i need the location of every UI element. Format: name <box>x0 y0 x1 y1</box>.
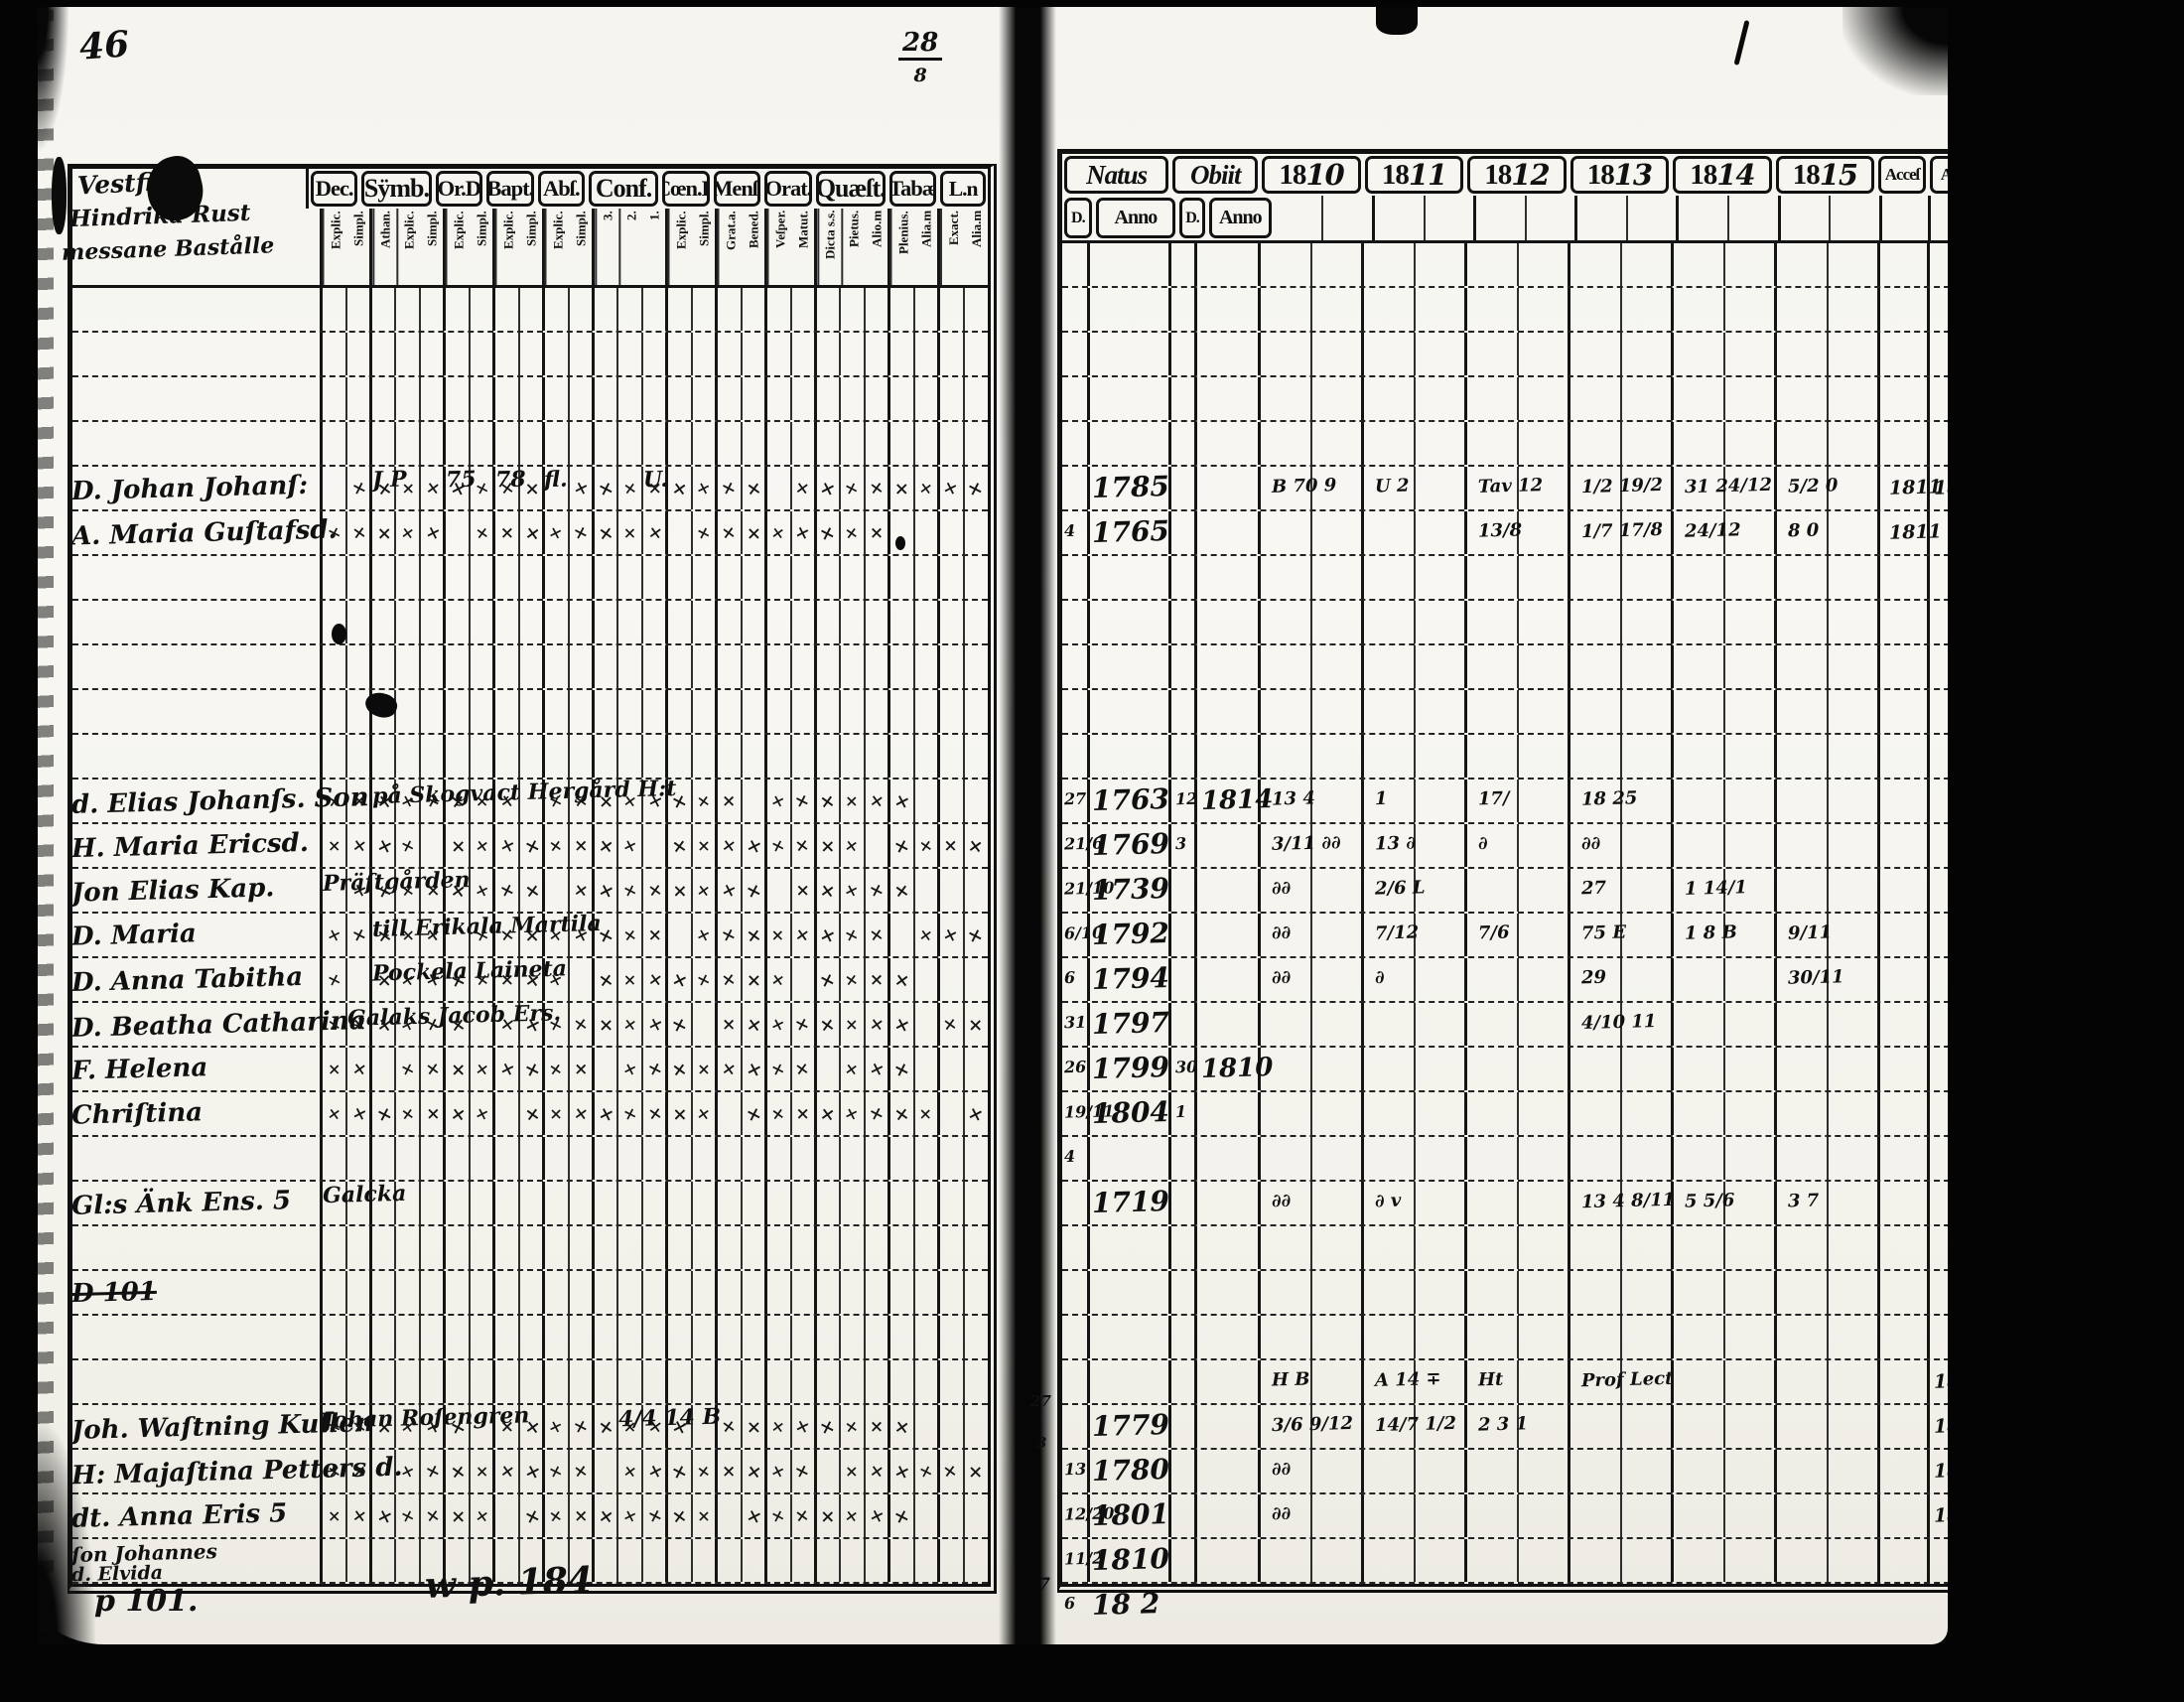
mark-cell-group <box>495 422 545 465</box>
mark-cell <box>323 824 347 867</box>
mark-cell <box>595 422 618 465</box>
mark-cell <box>915 1539 938 1582</box>
year-cell <box>1467 1360 1570 1403</box>
year-cell <box>1674 1360 1777 1403</box>
year-cell <box>1467 914 1570 956</box>
mark-cell <box>595 1137 618 1180</box>
year-cell <box>1261 780 1364 822</box>
mark-cell <box>817 1182 841 1224</box>
mark-cell <box>495 1048 520 1090</box>
table-row <box>1062 1494 1979 1539</box>
mark-cell <box>817 288 841 331</box>
mark-cell-group <box>890 1494 940 1537</box>
year-cell <box>1467 601 1570 643</box>
mark-cell-group <box>940 1405 988 1448</box>
mark-cell-group <box>446 1539 495 1582</box>
mark-cell-group <box>446 958 495 1001</box>
mark-cell <box>693 1494 716 1537</box>
mark-cell-group <box>767 1494 817 1537</box>
mark-cell-group <box>446 690 495 733</box>
year-header-1814: 18 14 <box>1673 156 1771 194</box>
mark-cell-group <box>323 1048 372 1090</box>
obiit-day-cell <box>1171 377 1197 420</box>
mark-cell <box>693 333 716 375</box>
mark-cell <box>421 556 443 599</box>
mark-cell <box>643 1048 665 1090</box>
natus-anno-cell <box>1090 1405 1171 1448</box>
mark-cell <box>471 1182 493 1224</box>
mark-cell <box>347 1494 370 1537</box>
mark-cell <box>570 333 593 375</box>
natus-day-cell <box>1062 1003 1090 1046</box>
subheader-group: Explic.Simpl. <box>495 209 545 285</box>
table-row <box>1062 1137 1979 1182</box>
mark-cell-group <box>495 1182 545 1224</box>
mark-cell <box>965 1048 988 1090</box>
mark-cell <box>396 511 420 554</box>
mark-cell-group <box>595 511 668 554</box>
mark-cell <box>743 1092 765 1135</box>
mark-cell-group <box>890 377 940 420</box>
mark-cell <box>618 377 642 420</box>
mark-cell <box>965 1092 988 1135</box>
mark-cell <box>890 1539 915 1582</box>
mark-cell-group <box>446 556 495 599</box>
mark-cell <box>446 780 471 822</box>
year-header-1815: 18 15 <box>1776 156 1874 194</box>
column-header-7: Cœn.D <box>662 171 710 207</box>
subheader-label: Alio.m <box>866 209 887 285</box>
mark-cell-group <box>940 1360 988 1403</box>
mark-cell-group <box>595 1316 668 1358</box>
mark-cell-group <box>767 1092 817 1135</box>
mark-cell <box>890 735 915 778</box>
mark-cell <box>792 601 815 643</box>
mark-cell-group <box>668 1137 718 1180</box>
mark-cell-group <box>495 645 545 688</box>
natus-day-cell <box>1062 1405 1090 1448</box>
name-cell <box>72 824 323 867</box>
mark-cell-group <box>718 1092 767 1135</box>
mark-cell-group <box>817 288 890 331</box>
mark-cell <box>396 333 420 375</box>
year-cell <box>1261 645 1364 688</box>
name-cell <box>72 422 323 465</box>
mark-cell <box>323 1048 347 1090</box>
mark-cell <box>965 333 988 375</box>
natus-anno-cell <box>1090 780 1171 822</box>
year-header-1810: 18 10 <box>1262 156 1360 194</box>
mark-cell <box>618 1271 642 1314</box>
obiit-anno-cell <box>1197 422 1261 465</box>
table-row <box>1062 780 1979 824</box>
mark-cell <box>495 690 520 733</box>
mark-cell <box>866 556 887 599</box>
mark-cell <box>915 1226 938 1269</box>
mark-cell <box>545 645 570 688</box>
subheader-label: Explic. <box>495 209 520 285</box>
mark-cell <box>446 958 471 1001</box>
mark-cell <box>668 467 693 509</box>
mark-cell-group <box>495 1226 545 1269</box>
mark-cell <box>743 958 765 1001</box>
year-cell <box>1570 914 1674 956</box>
mark-cell-group <box>817 377 890 420</box>
mark-cell <box>471 824 493 867</box>
mark-cell <box>693 511 716 554</box>
mark-cell <box>817 645 841 688</box>
table-row <box>1062 869 1979 914</box>
mark-cell <box>866 1494 887 1537</box>
mark-cell <box>915 1182 938 1224</box>
mark-cell-group <box>940 958 988 1001</box>
mark-cell <box>915 556 938 599</box>
mark-cell <box>421 1539 443 1582</box>
mark-cell <box>323 422 347 465</box>
mark-cell <box>372 1450 396 1492</box>
year-cell <box>1364 377 1467 420</box>
mark-cell-group <box>446 1137 495 1180</box>
year-subcols <box>1781 196 1882 240</box>
right-header-row: NatusObiit18 1018 1118 1218 1318 1418 15… <box>1062 154 1979 196</box>
mark-cell <box>767 377 792 420</box>
natus-anno-cell <box>1090 1137 1171 1180</box>
subheader-group: Athan.Explic.Simpl. <box>372 209 446 285</box>
year-cell <box>1570 1405 1674 1448</box>
mark-cell-group <box>817 1360 890 1403</box>
mark-cell <box>595 824 618 867</box>
mark-cell <box>520 1494 543 1537</box>
mark-cell <box>372 914 396 956</box>
mark-cell <box>495 333 520 375</box>
mark-cell <box>520 735 543 778</box>
natus-anno-cell <box>1090 377 1171 420</box>
mark-cell <box>446 1360 471 1403</box>
mark-cell-group <box>495 1271 545 1314</box>
mark-cell <box>866 1226 887 1269</box>
mark-cell <box>693 1271 716 1314</box>
mark-cell <box>817 1092 841 1135</box>
acce-cell <box>1880 1405 1930 1448</box>
mark-cell <box>817 467 841 509</box>
mark-cell <box>570 556 593 599</box>
mark-cell <box>347 556 370 599</box>
year-cell <box>1467 1048 1570 1090</box>
mark-cell-group <box>372 377 446 420</box>
year-cell <box>1467 243 1570 286</box>
mark-cell <box>643 1271 665 1314</box>
mark-cell <box>372 422 396 465</box>
mark-cell <box>940 780 965 822</box>
mark-cell <box>817 1539 841 1582</box>
mark-cell <box>841 735 865 778</box>
table-row <box>72 556 988 601</box>
mark-cell <box>570 1494 593 1537</box>
natus-header: Natus <box>1064 156 1168 194</box>
mark-cell-group <box>718 735 767 778</box>
year-cell <box>1674 1494 1777 1537</box>
subheader-label: 1. <box>643 209 665 285</box>
mark-cell <box>495 645 520 688</box>
mark-cell-group <box>495 1003 545 1046</box>
mark-cell-group <box>767 869 817 912</box>
mark-cell <box>693 556 716 599</box>
mark-cell <box>743 467 765 509</box>
mark-cell <box>520 1271 543 1314</box>
subheader-group: Plenius.Alia.m <box>890 209 940 285</box>
mark-cell <box>545 1405 570 1448</box>
mark-cell <box>446 333 471 375</box>
acce-cell <box>1880 735 1930 778</box>
mark-cell <box>965 1182 988 1224</box>
mark-cell <box>693 601 716 643</box>
mark-cell <box>866 869 887 912</box>
mark-cell <box>841 824 865 867</box>
year-cell <box>1674 243 1777 286</box>
mark-cell <box>495 1539 520 1582</box>
table-row <box>1062 1405 1979 1450</box>
year-cell <box>1674 1048 1777 1090</box>
mark-cell <box>866 333 887 375</box>
subheader-label: Alia.m <box>965 209 988 285</box>
mark-cell <box>718 735 743 778</box>
mark-cell <box>890 914 915 956</box>
year-cell <box>1777 556 1880 599</box>
year-cell <box>1467 1182 1570 1224</box>
mark-cell <box>743 1182 765 1224</box>
mark-cell <box>693 288 716 331</box>
mark-cell <box>743 377 765 420</box>
mark-cell <box>792 556 815 599</box>
natus-anno-cell <box>1090 288 1171 331</box>
mark-cell-group <box>718 1360 767 1403</box>
mark-cell <box>693 1405 716 1448</box>
mark-cell <box>495 1182 520 1224</box>
mark-cell <box>471 556 493 599</box>
mark-cell <box>668 914 693 956</box>
mark-cell <box>965 869 988 912</box>
mark-cell <box>545 869 570 912</box>
mark-cell-group <box>890 1450 940 1492</box>
mark-cell-group <box>767 333 817 375</box>
mark-cell <box>396 824 420 867</box>
mark-cell-group <box>323 1539 372 1582</box>
mark-cell-group <box>446 1316 495 1358</box>
mark-cell-group <box>595 1494 668 1537</box>
mark-cell <box>347 601 370 643</box>
mark-cell <box>743 601 765 643</box>
mark-cell <box>965 377 988 420</box>
natus-anno-cell <box>1090 1271 1171 1314</box>
mark-cell-group <box>495 511 545 554</box>
mark-cell <box>471 1494 493 1537</box>
mark-cell <box>718 601 743 643</box>
mark-cell <box>471 377 493 420</box>
mark-cell <box>545 958 570 1001</box>
mark-cell <box>545 1092 570 1135</box>
mark-cell <box>915 824 938 867</box>
mark-cell <box>471 1271 493 1314</box>
mark-cell <box>618 914 642 956</box>
mark-cell <box>421 377 443 420</box>
mark-cell <box>396 1316 420 1358</box>
mark-cell-group <box>595 288 668 331</box>
mark-cell <box>570 1092 593 1135</box>
mark-cell-group <box>372 735 446 778</box>
year-cell <box>1261 556 1364 599</box>
mark-cell-group <box>668 735 718 778</box>
year-cell <box>1364 690 1467 733</box>
mark-cell-group <box>595 1182 668 1224</box>
table-row <box>1062 601 1979 645</box>
binding-speckle <box>36 10 54 1638</box>
mark-cell <box>718 1048 743 1090</box>
mark-cell <box>520 1048 543 1090</box>
subheader-group: Explic.Simpl. <box>668 209 718 285</box>
mark-cell-group <box>446 1003 495 1046</box>
mark-cell <box>866 601 887 643</box>
table-row <box>1062 1271 1979 1316</box>
year-cell <box>1674 511 1777 554</box>
mark-cell <box>915 333 938 375</box>
mark-cell <box>792 1360 815 1403</box>
obiit-anno-cell <box>1197 1360 1261 1403</box>
mark-cell <box>668 377 693 420</box>
acce-cell <box>1880 1316 1930 1358</box>
mark-cell <box>841 645 865 688</box>
mark-cell <box>595 1271 618 1314</box>
year-cell <box>1467 780 1570 822</box>
year-cell <box>1467 824 1570 867</box>
year-cell <box>1364 1003 1467 1046</box>
mark-cell <box>718 869 743 912</box>
mark-cell <box>940 1092 965 1135</box>
mark-cell <box>446 735 471 778</box>
mark-cell <box>890 780 915 822</box>
mark-cell <box>471 690 493 733</box>
mark-cell <box>323 780 347 822</box>
mark-cell <box>595 1003 618 1046</box>
year-cell <box>1261 690 1364 733</box>
mark-cell <box>841 1405 865 1448</box>
mark-cell <box>965 288 988 331</box>
subheader-label: Explic. <box>446 209 471 285</box>
mark-cell <box>495 556 520 599</box>
acce-cell <box>1880 422 1930 465</box>
mark-cell <box>817 601 841 643</box>
mark-cell-group <box>890 288 940 331</box>
mark-cell-group <box>718 690 767 733</box>
name-cell <box>72 1360 323 1403</box>
year-cell <box>1261 914 1364 956</box>
year-cell <box>1364 1092 1467 1135</box>
mark-cell <box>767 1137 792 1180</box>
table-row <box>1062 243 1979 288</box>
obiit-day-cell <box>1171 1494 1197 1537</box>
year-subcols <box>1375 196 1476 240</box>
mark-cell <box>396 1003 420 1046</box>
natus-day-cell <box>1062 914 1090 956</box>
mark-cell <box>421 1137 443 1180</box>
name-cell <box>72 1450 323 1492</box>
mark-cell <box>495 467 520 509</box>
mark-cell <box>792 333 815 375</box>
mark-cell-group <box>890 1360 940 1403</box>
mark-cell <box>718 377 743 420</box>
mark-cell <box>792 645 815 688</box>
mark-cell <box>421 1226 443 1269</box>
mark-cell-group <box>595 824 668 867</box>
mark-cell <box>570 869 593 912</box>
mark-cell <box>866 1450 887 1492</box>
mark-cell <box>396 377 420 420</box>
mark-cell <box>570 780 593 822</box>
left-header-row: Dec.Sÿmb.Or.DBapt.Abſ.Conf.Cœn.DMenſ.Ora… <box>72 169 988 209</box>
mark-cell-group <box>817 824 890 867</box>
mark-cell <box>372 1003 396 1046</box>
left-subheader-row: Explic.Simpl.Athan.Explic.Simpl.Explic.S… <box>72 209 988 288</box>
scan-edge-top <box>0 0 2184 7</box>
mark-cell <box>323 958 347 1001</box>
mark-cell <box>595 1450 618 1492</box>
year-cell <box>1570 556 1674 599</box>
mark-cell-group <box>372 869 446 912</box>
mark-cell <box>743 1137 765 1180</box>
mark-cell <box>618 735 642 778</box>
mark-cell <box>347 377 370 420</box>
mark-cell <box>890 1405 915 1448</box>
mark-cell <box>396 1271 420 1314</box>
year-cell <box>1261 601 1364 643</box>
year-cell <box>1261 288 1364 331</box>
mark-cell-group <box>372 1360 446 1403</box>
natus-day-cell <box>1062 869 1090 912</box>
year-cell <box>1674 780 1777 822</box>
mark-cell <box>495 735 520 778</box>
mark-cell <box>618 1494 642 1537</box>
mark-cell <box>618 1450 642 1492</box>
table-row <box>72 869 988 914</box>
name-cell <box>72 1271 323 1314</box>
mark-cell <box>347 824 370 867</box>
mark-cell <box>668 1048 693 1090</box>
mark-cell <box>595 1405 618 1448</box>
mark-cell <box>446 1003 471 1046</box>
year-cell <box>1467 1450 1570 1492</box>
table-row <box>1062 422 1979 467</box>
table-row <box>72 288 988 333</box>
mark-cell <box>817 511 841 554</box>
mark-cell <box>767 1450 792 1492</box>
mark-cell-group <box>817 1226 890 1269</box>
year-cell <box>1467 1092 1570 1135</box>
mark-cell <box>421 958 443 1001</box>
year-cell <box>1364 467 1467 509</box>
mark-cell-group <box>718 422 767 465</box>
mark-cell <box>520 1405 543 1448</box>
mark-cell <box>743 780 765 822</box>
mark-cell <box>743 1226 765 1269</box>
mark-cell <box>743 690 765 733</box>
mark-cell <box>890 1137 915 1180</box>
year-cell <box>1674 1450 1777 1492</box>
mark-cell <box>841 1226 865 1269</box>
mark-cell <box>545 1048 570 1090</box>
year-cell <box>1570 824 1674 867</box>
mark-cell <box>421 735 443 778</box>
acce-cell <box>1880 288 1930 331</box>
acce-cell <box>1880 243 1930 286</box>
